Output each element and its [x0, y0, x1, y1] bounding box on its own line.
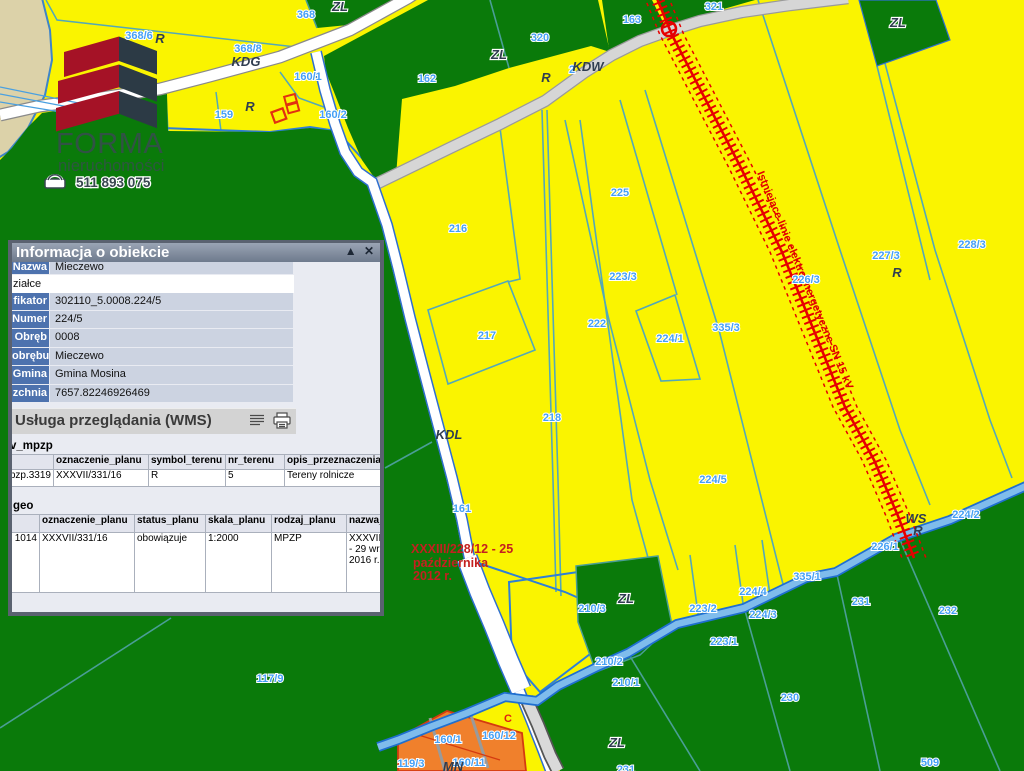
svg-text:XXXIII/228/12 - 25: XXXIII/228/12 - 25	[411, 542, 513, 556]
svg-text:2012 r.: 2012 r.	[413, 569, 452, 583]
svg-text:224/3: 224/3	[749, 609, 777, 621]
svg-text:MN: MN	[443, 759, 464, 771]
svg-text:226/1: 226/1	[871, 541, 899, 553]
svg-text:320: 320	[531, 32, 549, 44]
svg-text:223/2: 223/2	[689, 603, 717, 615]
svg-text:216: 216	[449, 223, 467, 235]
svg-text:509: 509	[921, 757, 939, 769]
svg-text:R: R	[245, 99, 255, 114]
svg-text:R: R	[913, 523, 923, 538]
svg-text:KDL: KDL	[436, 427, 463, 442]
svg-text:368: 368	[297, 9, 315, 21]
svg-text:R: R	[892, 265, 902, 280]
svg-text:119/3: 119/3	[398, 758, 425, 770]
svg-text:ZL: ZL	[331, 0, 348, 14]
svg-text:223/3: 223/3	[609, 271, 637, 283]
svg-text:335/1: 335/1	[793, 571, 821, 583]
svg-text:117/9: 117/9	[257, 673, 284, 685]
svg-text:160/12: 160/12	[482, 730, 516, 742]
svg-text:C: C	[504, 713, 512, 725]
svg-text:ZL: ZL	[617, 591, 634, 606]
svg-text:160/1: 160/1	[294, 71, 322, 83]
svg-text:210/1: 210/1	[612, 677, 640, 689]
svg-text:225: 225	[611, 187, 629, 199]
svg-text:223/1: 223/1	[710, 636, 738, 648]
svg-text:KDW: KDW	[572, 59, 605, 74]
svg-text:października: października	[413, 556, 489, 570]
svg-text:163: 163	[623, 14, 641, 26]
svg-text:FORMA: FORMA	[56, 128, 163, 160]
svg-text:KDG: KDG	[232, 54, 261, 69]
svg-text:160/2: 160/2	[319, 109, 347, 121]
svg-text:217: 217	[478, 330, 496, 342]
svg-text:511 893 075: 511 893 075	[76, 175, 151, 190]
svg-text:224/2: 224/2	[952, 509, 980, 521]
svg-text:161: 161	[453, 503, 471, 515]
svg-text:ZL: ZL	[608, 735, 625, 750]
svg-text:R: R	[541, 70, 551, 85]
svg-text:210/2: 210/2	[595, 656, 623, 668]
svg-text:368/6: 368/6	[125, 30, 153, 42]
svg-text:231: 231	[852, 596, 870, 608]
svg-text:226/3: 226/3	[792, 274, 820, 286]
svg-text:222: 222	[588, 318, 606, 330]
svg-text:nieruchomości: nieruchomości	[58, 157, 164, 175]
svg-text:224/1: 224/1	[656, 333, 684, 345]
svg-text:230: 230	[781, 692, 799, 704]
svg-text:160/1: 160/1	[434, 734, 462, 746]
svg-text:ZL: ZL	[889, 15, 906, 30]
svg-text:ZL: ZL	[490, 47, 507, 62]
svg-text:159: 159	[215, 109, 233, 121]
svg-text:227/3: 227/3	[872, 250, 900, 262]
svg-text:335/3: 335/3	[712, 322, 740, 334]
svg-text:162: 162	[418, 73, 436, 85]
svg-text:321: 321	[705, 1, 723, 13]
svg-text:218: 218	[543, 412, 561, 424]
svg-text:R: R	[155, 31, 165, 46]
svg-text:224/4: 224/4	[739, 586, 767, 598]
svg-text:228/3: 228/3	[958, 239, 986, 251]
svg-text:232: 232	[939, 605, 957, 617]
svg-text:231: 231	[617, 764, 635, 771]
svg-text:210/3: 210/3	[578, 603, 606, 615]
svg-text:224/5: 224/5	[699, 474, 727, 486]
